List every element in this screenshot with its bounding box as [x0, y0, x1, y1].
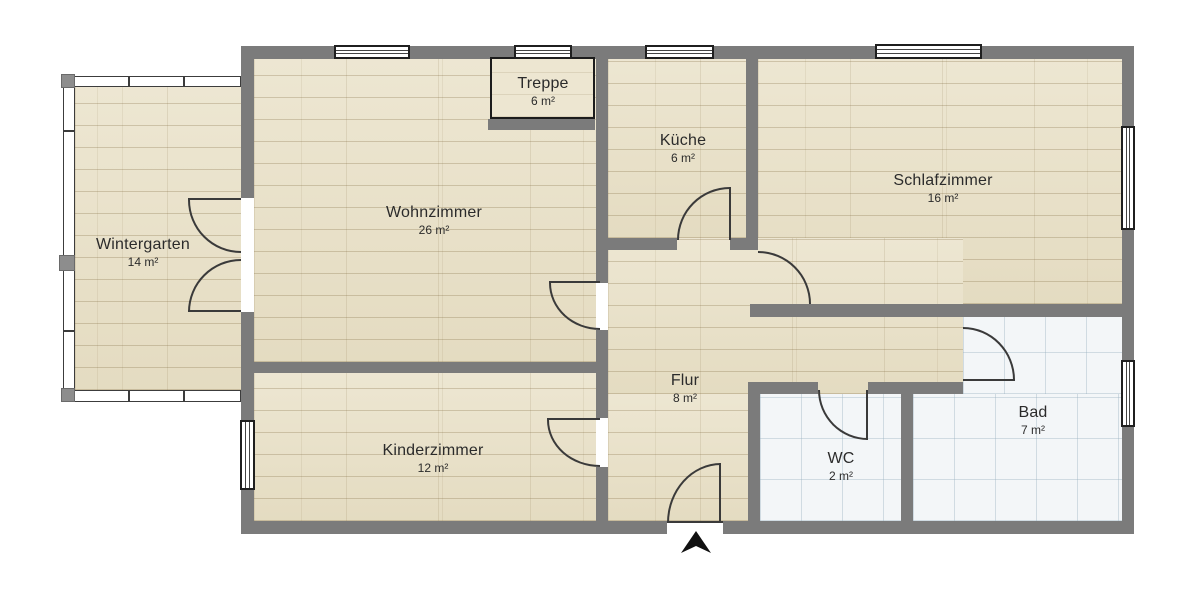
window-bad-right: [1121, 360, 1135, 427]
wall-kinderzimmer-flur-upper: [596, 373, 608, 418]
room-label-wc: WC 2 m²: [827, 451, 854, 483]
glass-band-left: [63, 76, 75, 402]
wall-left-upper: [241, 46, 254, 198]
wall-bottom: [241, 521, 667, 534]
wall-kueche-right: [746, 58, 758, 250]
arrow-up-icon: [678, 529, 716, 557]
wall-wc-top-right: [868, 382, 963, 394]
wall-right: [1122, 46, 1134, 534]
wall-schlafzimmer-bottom: [750, 304, 1123, 317]
window-schlafzimmer-right: [1121, 126, 1135, 230]
glass-tick: [63, 130, 75, 132]
entrance-threshold: [667, 521, 723, 523]
room-label-wohnzimmer: Wohnzimmer 26 m²: [386, 205, 482, 237]
glass-tick: [128, 390, 130, 402]
glass-corner-post: [61, 388, 75, 402]
glass-tick: [183, 390, 185, 402]
window-wohnzimmer-top: [334, 45, 410, 59]
room-label-flur: Flur 8 m²: [671, 373, 699, 405]
wall-kueche-bottom: [596, 238, 677, 250]
wall-wohnzimmer-flur: [596, 330, 608, 362]
wall-under-treppe: [488, 119, 595, 130]
room-label-wintergarten: Wintergarten 14 m²: [96, 237, 190, 269]
room-label-treppe: Treppe 6 m²: [517, 76, 568, 108]
floor-plan: Wintergarten 14 m² Wohnzimmer 26 m² Trep…: [0, 0, 1200, 600]
glass-tick: [63, 330, 75, 332]
glass-tick: [183, 76, 185, 87]
wall-bottom-right: [723, 521, 1134, 534]
room-label-bad: Bad 7 m²: [1018, 405, 1047, 437]
glass-corner-post: [61, 74, 75, 88]
window-schlafzimmer-top: [875, 44, 982, 59]
window-kinderzimmer-left: [240, 420, 255, 490]
glass-mid-post: [59, 255, 75, 271]
wall-kinderzimmer-flur-lower: [596, 467, 608, 521]
wall-wc-left: [748, 382, 760, 521]
wall-kinderzimmer-top: [250, 362, 608, 373]
wall-wc-bad-divider: [901, 394, 913, 521]
room-label-kinderzimmer: Kinderzimmer 12 m²: [382, 443, 483, 475]
window-kueche-top: [645, 45, 714, 59]
glass-tick: [128, 76, 130, 87]
window-treppe-top: [514, 45, 572, 59]
glass-band-bottom: [63, 390, 241, 402]
glass-band-top: [63, 76, 241, 87]
room-label-schlafzimmer: Schlafzimmer 16 m²: [893, 173, 992, 205]
room-label-kueche: Küche 6 m²: [660, 133, 706, 165]
